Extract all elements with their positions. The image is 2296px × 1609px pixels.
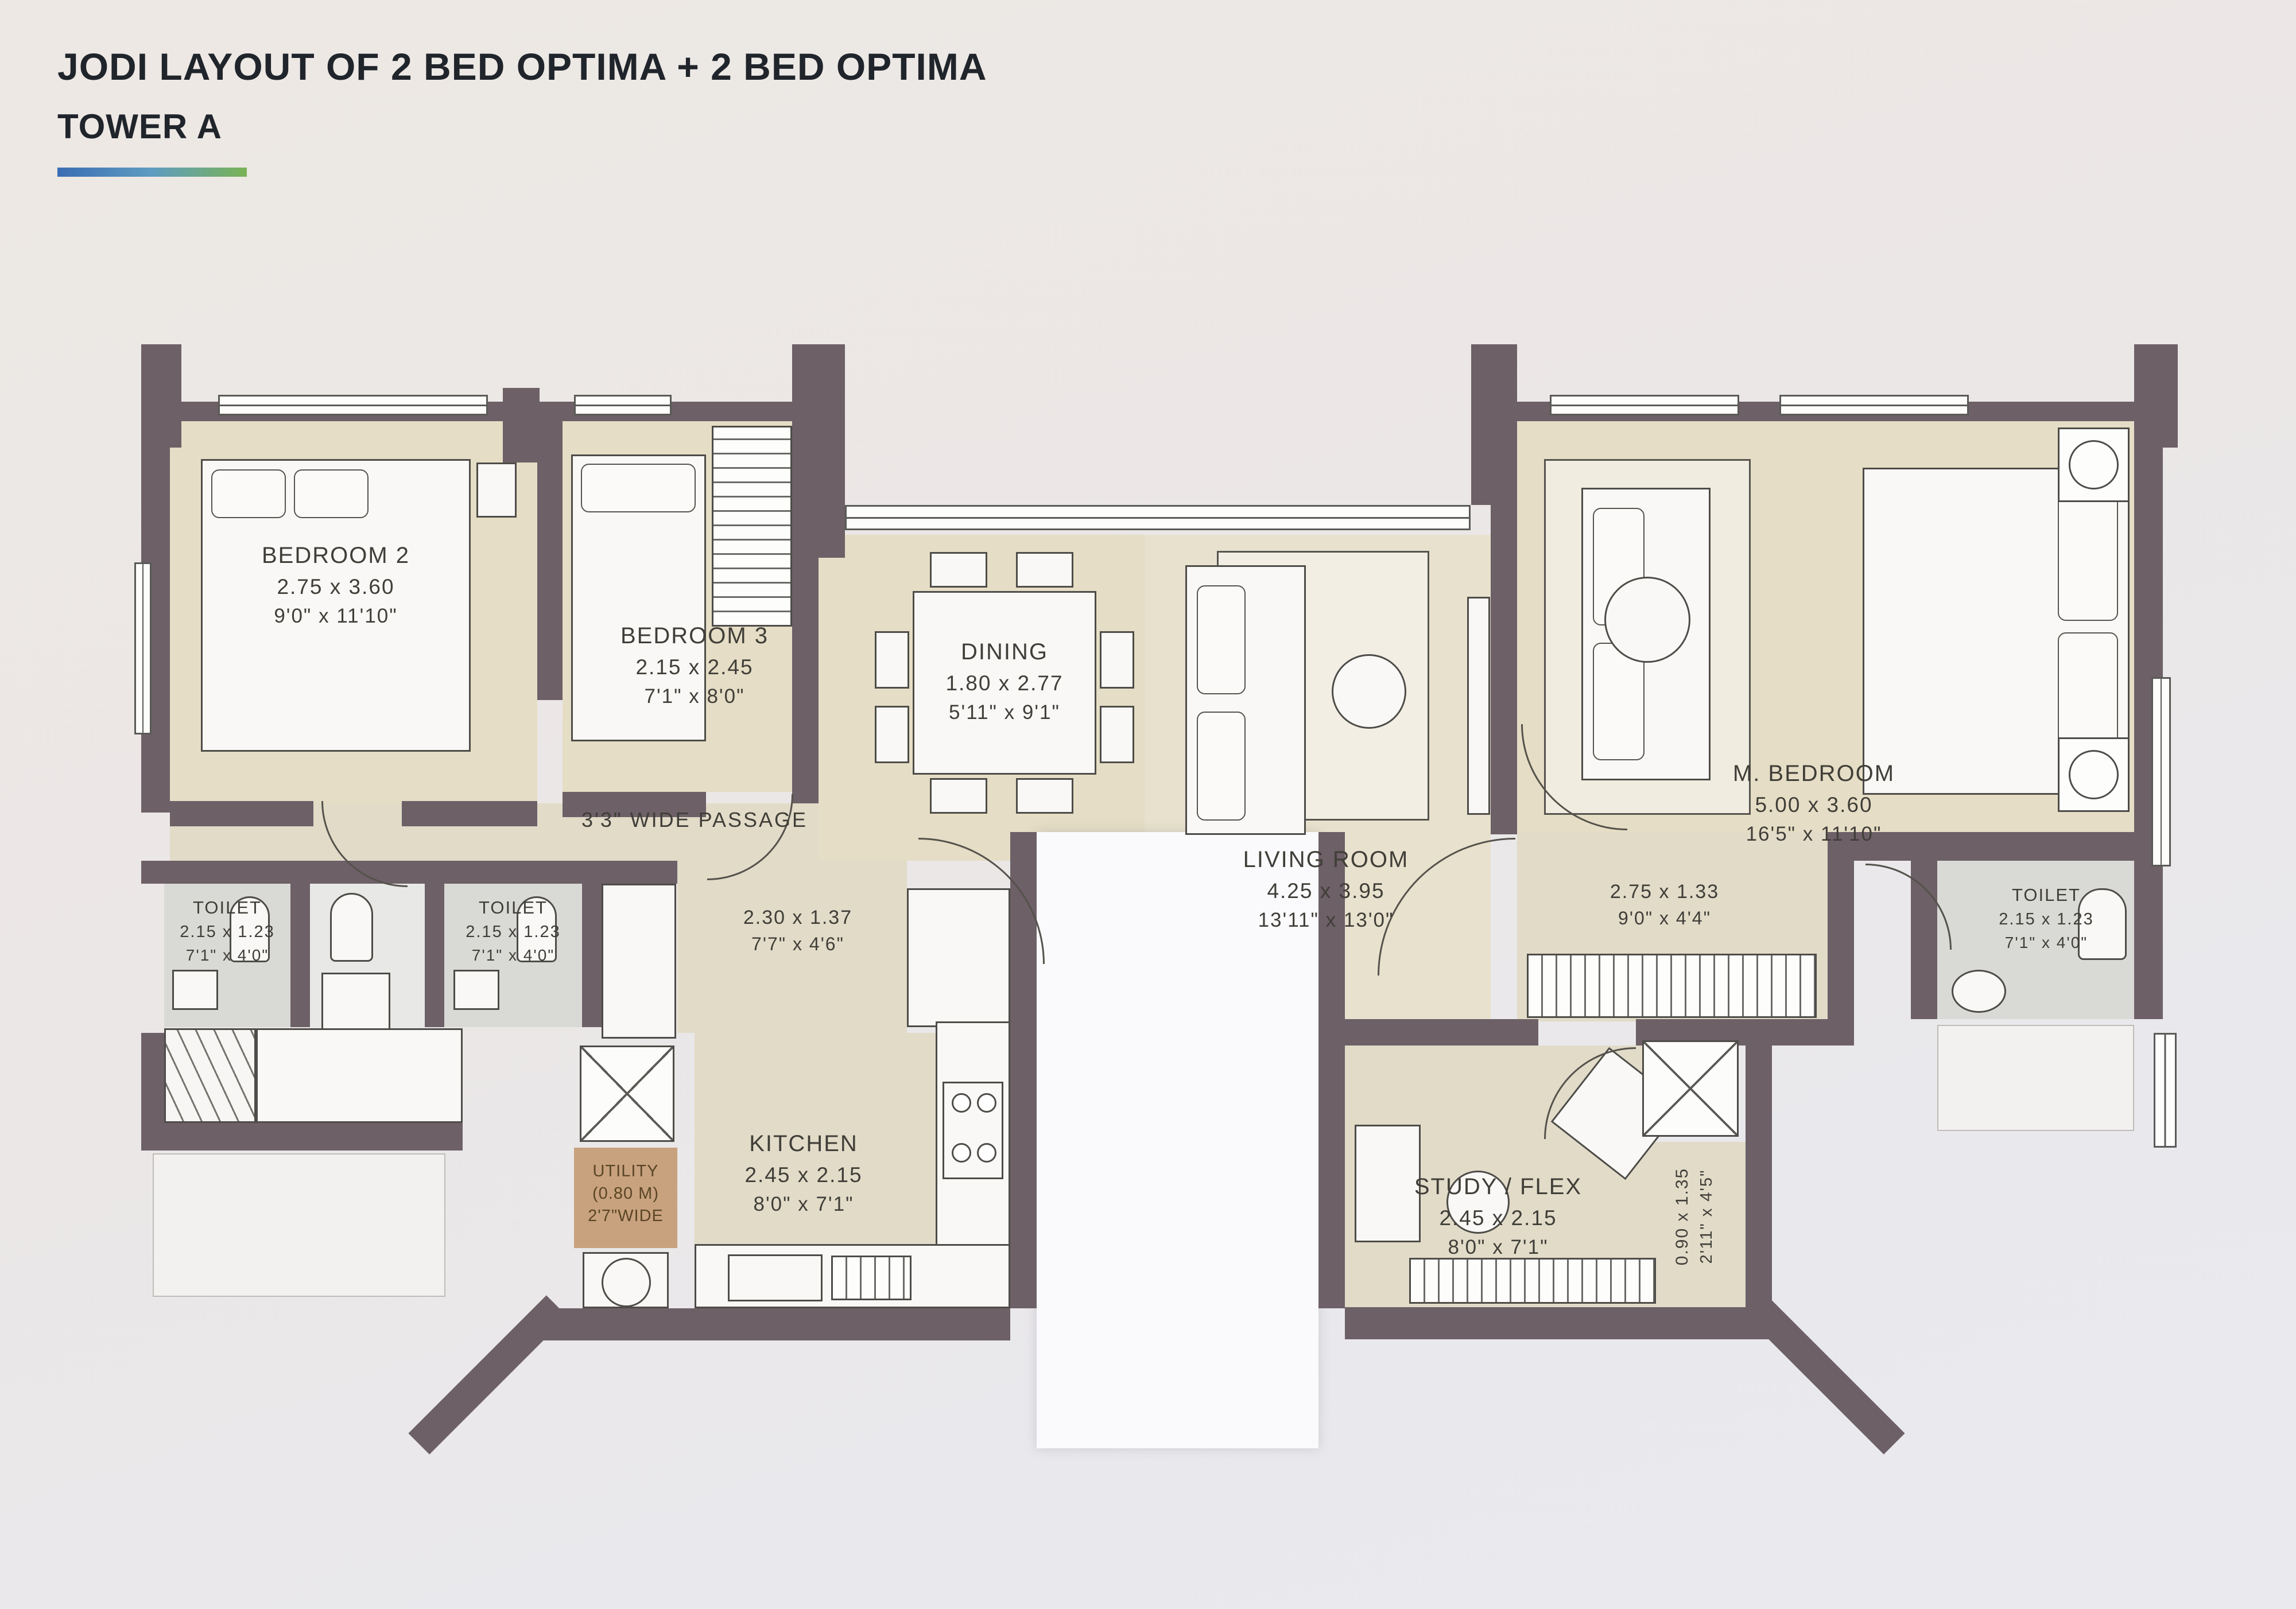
label-toilet3: TOILET 2.15 x 1.23 7'1" x 4'0"	[1963, 883, 2130, 954]
wall-pillar-rightcenter	[1471, 344, 1517, 505]
room-dim-metric: 5.00 x 3.60	[1653, 790, 1975, 821]
tower-subtitle: TOWER A	[57, 107, 222, 146]
window-right-side	[2151, 677, 2171, 866]
label-bedroom2: BEDROOM 2 2.75 x 3.60 9'0" x 11'10"	[201, 539, 471, 631]
room-dim-imperial: 7'1" x 4'0"	[1963, 931, 2130, 954]
dining-chair-icon	[1016, 552, 1073, 588]
room-dim-imperial: 13'11" x 13'0"	[1182, 906, 1469, 935]
wall-left-unit-bottom	[540, 1308, 1010, 1340]
label-dining: DINING 1.80 x 2.77 5'11" x 9'1"	[913, 636, 1096, 727]
dining-chair-icon	[875, 631, 909, 689]
shoe-cabinet-icon	[164, 1028, 256, 1123]
room-dim-metric: 2.15 x 1.23	[444, 920, 582, 944]
label-study: STUDY / FLEX 2.45 x 2.15 8'0" x 7'1"	[1366, 1171, 1630, 1262]
pouf-icon	[1604, 577, 1690, 663]
page-title: JODI LAYOUT OF 2 BED OPTIMA + 2 BED OPTI…	[57, 45, 987, 88]
room-name: KITCHEN	[677, 1128, 930, 1160]
label-utility: UTILITY (0.80 M) 2'7"WIDE	[574, 1160, 677, 1227]
wall-toilet2-left	[425, 884, 444, 1027]
utility-line: 2'7"WIDE	[574, 1205, 677, 1227]
burner-icon	[952, 1143, 971, 1163]
basin-icon	[453, 970, 499, 1010]
room-dim-metric: 1.80 x 2.77	[913, 669, 1096, 699]
room-name: STUDY / FLEX	[1366, 1171, 1630, 1203]
tv-unit-icon	[1467, 597, 1490, 815]
bookshelf-icon	[1409, 1258, 1656, 1304]
sink-icon	[728, 1254, 823, 1301]
wall-tail-left	[408, 1295, 567, 1454]
room-dim-metric: 2.15 x 2.45	[585, 652, 804, 683]
room-dim-imperial: 16'5" x 11'10"	[1653, 820, 1975, 849]
room-name: LIVING ROOM	[1182, 844, 1469, 876]
room-dim-imperial: 7'1" x 8'0"	[585, 682, 804, 711]
room-dim-imperial: 7'7" x 4'6"	[703, 931, 893, 957]
storage-cabinet-icon	[602, 884, 676, 1039]
room-name: BEDROOM 2	[201, 539, 471, 572]
external-ledge-left	[153, 1153, 445, 1297]
utility-line: UTILITY	[574, 1160, 677, 1183]
bed2-pillow-icon	[211, 469, 286, 518]
basin-icon	[1952, 970, 2006, 1013]
burner-icon	[977, 1093, 996, 1113]
wall-passage-stub-a	[170, 801, 313, 826]
dining-chair-icon	[875, 706, 909, 763]
window-living-dining	[845, 505, 1471, 530]
wall-pillar-topcenter	[792, 344, 845, 558]
wall-study-right	[1746, 1025, 1772, 1307]
room-name: TOILET	[444, 895, 582, 920]
burner-icon	[977, 1143, 996, 1163]
wardrobe-bedroom3-icon	[712, 426, 792, 627]
room-dim-metric: 0.90 x 1.35	[1670, 1130, 1695, 1303]
room-dim-metric: 4.25 x 3.95	[1182, 876, 1469, 907]
wall-bedroom-divider	[537, 402, 563, 700]
room-dim-metric: 2.30 x 1.37	[703, 904, 893, 931]
shower-tray-icon	[321, 973, 390, 1033]
window-master-b	[1779, 395, 1969, 415]
room-dim-imperial: 9'0" x 11'10"	[201, 602, 471, 631]
room-dim-imperial: 2'11" x 4'5"	[1695, 1130, 1719, 1303]
bed2-pillow-icon	[294, 469, 369, 518]
wall-toilets-top	[141, 861, 677, 884]
dining-chair-icon	[930, 552, 987, 588]
wall-passage-stub-b	[402, 801, 537, 826]
room-dim-metric: 2.75 x 3.60	[201, 572, 471, 603]
wall-dressing-toilet	[1828, 832, 1854, 1021]
sofa-cushion-icon	[1197, 712, 1246, 821]
label-hall-dim: 2.30 x 1.37 7'7" x 4'6"	[703, 904, 893, 958]
label-master: M. BEDROOM 5.00 x 3.60 16'5" x 11'10"	[1653, 757, 1975, 849]
label-toilet1: TOILET 2.15 x 1.23 7'1" x 4'0"	[164, 895, 290, 967]
room-dim-metric: 2.15 x 1.23	[1963, 908, 2130, 931]
coffee-table-icon	[1332, 654, 1406, 729]
accent-underline	[57, 168, 247, 177]
window-left-side	[134, 562, 152, 734]
vanity-counter-icon	[256, 1028, 463, 1123]
room-dim-metric: 2.75 x 1.33	[1538, 878, 1791, 905]
utility-line: (0.80 M)	[574, 1183, 677, 1205]
wall-toilets-bottom	[141, 1122, 463, 1151]
wall-tail-right	[1746, 1295, 1905, 1454]
wall-pillar-mid	[503, 388, 540, 463]
wc-icon	[330, 893, 373, 962]
label-toilet2: TOILET 2.15 x 1.23 7'1" x 4'0"	[444, 895, 582, 967]
wall-toilet1-right	[290, 884, 310, 1027]
label-dressing-dim: 2.75 x 1.33 9'0" x 4'4"	[1538, 878, 1791, 932]
room-name: M. BEDROOM	[1653, 757, 1975, 790]
window-right-lower	[2154, 1033, 2177, 1148]
duct-shaft-icon	[580, 1046, 674, 1142]
duct-shaft-icon	[1642, 1040, 1739, 1137]
label-living: LIVING ROOM 4.25 x 3.95 13'11" x 13'0"	[1182, 844, 1469, 935]
wall-study-top-a	[1345, 1019, 1538, 1046]
room-dim-metric: 2.15 x 1.23	[164, 920, 290, 944]
room-dim-imperial: 7'1" x 4'0"	[164, 944, 290, 967]
room-dim-metric: 2.45 x 2.15	[1366, 1203, 1630, 1234]
room-dim-metric: 2.45 x 2.15	[677, 1160, 930, 1191]
ceiling-fan-icon	[2058, 737, 2130, 812]
washer-drum-icon	[602, 1258, 651, 1307]
label-kitchen: KITCHEN 2.45 x 2.15 8'0" x 7'1"	[677, 1128, 930, 1219]
room-name: DINING	[913, 636, 1096, 669]
dining-chair-icon	[1100, 631, 1134, 689]
wall-right-unit-bottom	[1345, 1307, 1772, 1339]
dining-chair-icon	[930, 778, 987, 814]
dining-chair-icon	[1016, 778, 1073, 814]
room-dim-imperial: 9'0" x 4'4"	[1538, 905, 1791, 931]
window-bedroom2	[218, 395, 488, 415]
label-passage: 3'3" WIDE PASSAGE	[540, 808, 850, 832]
dressing-wardrobe-icon	[1527, 954, 1817, 1018]
room-dim-imperial: 5'11" x 9'1"	[913, 698, 1096, 727]
room-dim-imperial: 8'0" x 7'1"	[677, 1190, 930, 1219]
ceiling-fan-icon	[2058, 427, 2130, 502]
sofa-cushion-icon	[1197, 585, 1246, 694]
room-name: BEDROOM 3	[585, 620, 804, 652]
label-niche-dim: 0.90 x 1.35 2'11" x 4'5"	[1670, 1130, 1716, 1303]
window-master-a	[1550, 395, 1739, 415]
bed3-pillow-icon	[581, 464, 696, 512]
room-name: TOILET	[1963, 883, 2130, 908]
room-name: TOILET	[164, 895, 290, 920]
wall-pillar-topright	[2134, 344, 2178, 448]
page: { "header": { "title": "JODI LAYOUT OF 2…	[0, 0, 2296, 1609]
label-bedroom3: BEDROOM 3 2.15 x 2.45 7'1" x 8'0"	[585, 620, 804, 711]
room-dim-imperial: 7'1" x 4'0"	[444, 944, 582, 967]
room-dim-imperial: 8'0" x 7'1"	[1366, 1233, 1630, 1262]
wall-living-master	[1491, 505, 1517, 834]
window-bedroom3	[574, 395, 672, 415]
wall-toilet2-right	[582, 884, 602, 1027]
external-ledge-right	[1937, 1025, 2134, 1131]
dining-chair-icon	[1100, 706, 1134, 763]
drainboard-icon	[831, 1256, 912, 1300]
basin-icon	[172, 970, 218, 1010]
burner-icon	[952, 1093, 971, 1113]
bed2-sidetable-icon	[476, 463, 517, 518]
wall-pillar-topleft	[141, 344, 181, 448]
